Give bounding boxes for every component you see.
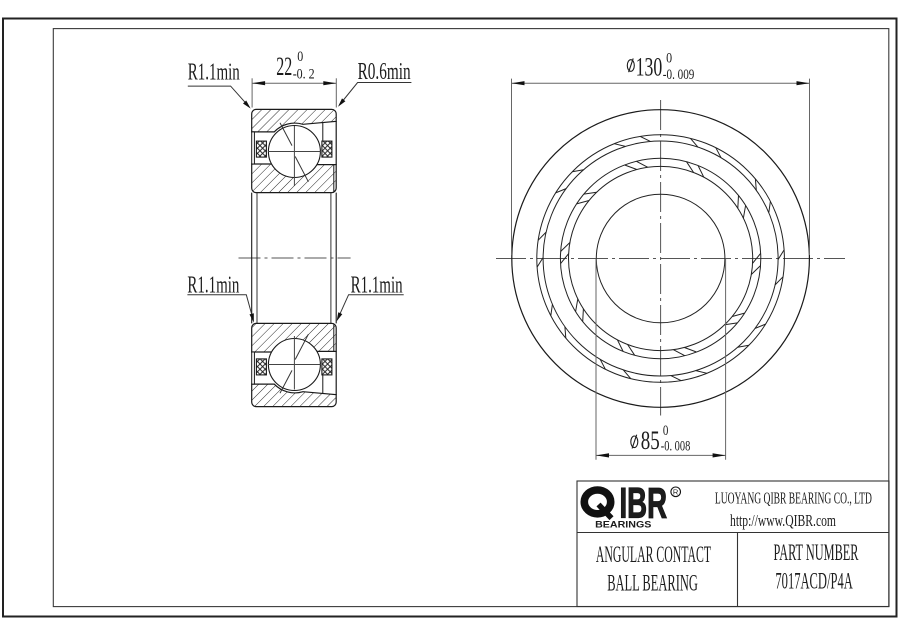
- svg-text:R1.1min: R1.1min: [188, 60, 240, 86]
- svg-text:7017ACD/P4A: 7017ACD/P4A: [775, 569, 853, 594]
- svg-text:85: 85: [641, 426, 660, 455]
- svg-text:R1.1min: R1.1min: [187, 272, 239, 298]
- svg-text:-0. 008: -0. 008: [661, 439, 691, 455]
- svg-text:22: 22: [276, 52, 292, 81]
- svg-text:0: 0: [663, 423, 669, 439]
- svg-text:R1.1min: R1.1min: [351, 272, 403, 298]
- svg-text:-0. 2: -0. 2: [293, 67, 315, 83]
- svg-text:-0. 009: -0. 009: [663, 67, 695, 83]
- svg-text:http://www.QIBR.com: http://www.QIBR.com: [730, 511, 836, 530]
- svg-text:0: 0: [666, 51, 672, 67]
- svg-text:LUOYANG QIBR BEARING CO., LTD: LUOYANG QIBR BEARING CO., LTD: [715, 489, 872, 508]
- svg-text:ANGULAR CONTACT: ANGULAR CONTACT: [596, 542, 711, 567]
- svg-text:0: 0: [297, 49, 303, 65]
- svg-text:130: 130: [636, 53, 663, 82]
- svg-text:R0.6min: R0.6min: [358, 59, 411, 85]
- svg-text:BEARINGS: BEARINGS: [595, 520, 651, 530]
- svg-text:BALL BEARING: BALL BEARING: [607, 571, 698, 596]
- svg-text:PART NUMBER: PART NUMBER: [774, 540, 859, 565]
- svg-text:R: R: [673, 488, 679, 497]
